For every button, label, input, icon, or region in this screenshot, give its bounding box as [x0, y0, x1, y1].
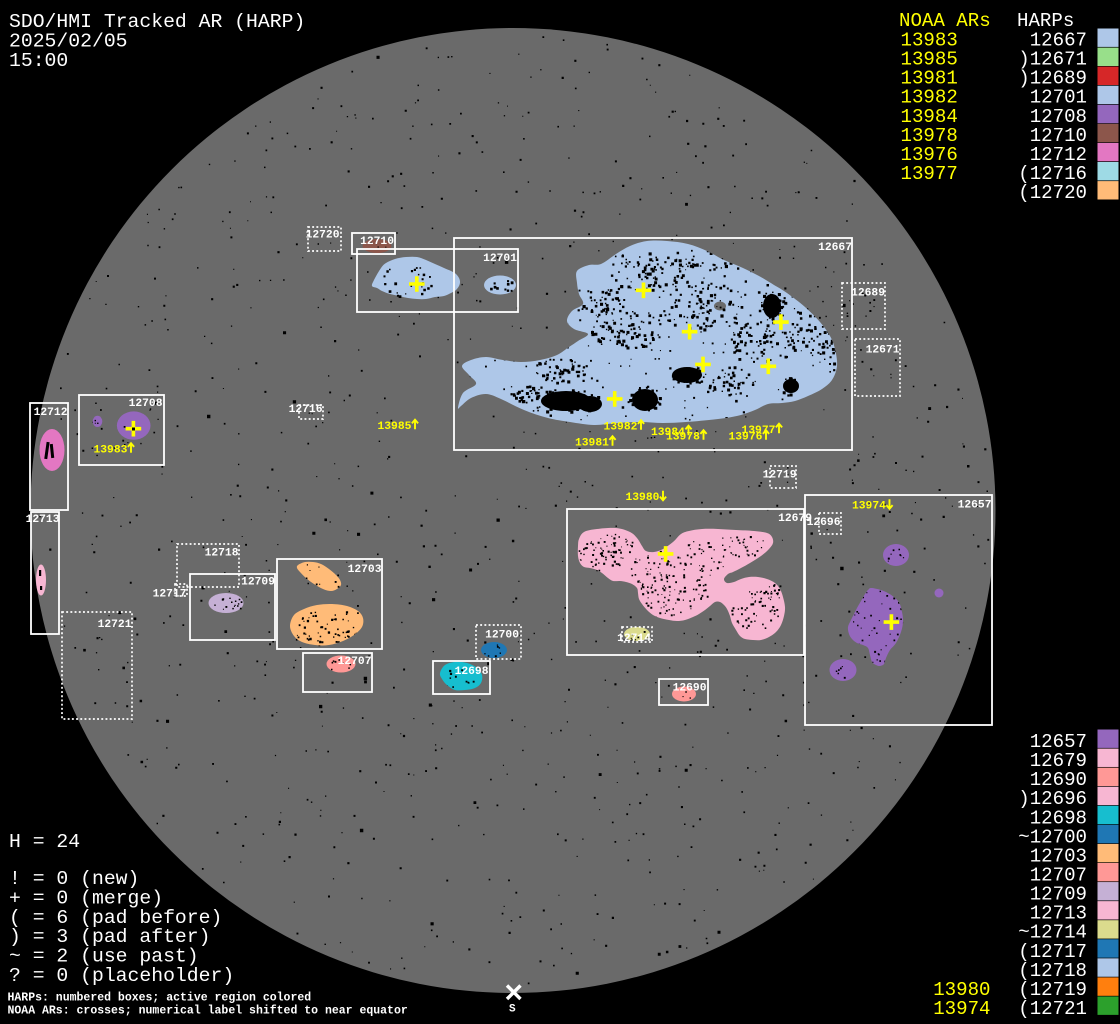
svg-text:13978: 13978 [666, 432, 700, 444]
svg-text:12690: 12690 [673, 683, 707, 695]
svg-text:12689: 12689 [851, 288, 885, 300]
svg-text:13982: 13982 [604, 422, 638, 434]
svg-text:12708: 12708 [129, 398, 163, 410]
svg-text:12710: 12710 [360, 236, 394, 248]
svg-text:12707: 12707 [338, 656, 372, 668]
svg-text:13974: 13974 [852, 501, 886, 513]
svg-text:12696: 12696 [807, 517, 841, 529]
svg-text:12713: 12713 [26, 514, 60, 526]
svg-text:13985: 13985 [378, 421, 412, 433]
svg-text:NOAA ARs: crosses; numerical l: NOAA ARs: crosses; numerical label shift… [8, 1005, 408, 1018]
svg-text:12700: 12700 [485, 630, 519, 642]
svg-text:12709: 12709 [241, 577, 275, 589]
svg-text:(12721: (12721 [1018, 998, 1087, 1020]
svg-text:HARPs: numbered boxes; active: HARPs: numbered boxes; active region col… [8, 992, 312, 1005]
svg-text:12657: 12657 [958, 500, 992, 512]
svg-text:12712: 12712 [34, 407, 68, 419]
svg-text:12703: 12703 [348, 564, 382, 576]
svg-text:S: S [509, 1004, 516, 1016]
svg-text:13983: 13983 [94, 445, 128, 457]
svg-text:12718: 12718 [205, 548, 239, 560]
svg-text:13974: 13974 [933, 998, 990, 1020]
svg-text:12720: 12720 [306, 230, 340, 242]
svg-text:12671: 12671 [866, 345, 900, 357]
svg-text:13977: 13977 [901, 163, 958, 185]
svg-text:? = 0 (placeholder): ? = 0 (placeholder) [9, 965, 234, 987]
svg-text:12667: 12667 [818, 242, 852, 254]
svg-text:13976: 13976 [729, 432, 763, 444]
svg-text:12698: 12698 [455, 666, 489, 678]
svg-text:12716: 12716 [289, 404, 323, 416]
svg-text:(12720: (12720 [1018, 182, 1087, 204]
svg-text:12719: 12719 [763, 470, 797, 482]
svg-text:12717: 12717 [153, 589, 187, 601]
svg-text:13981: 13981 [575, 438, 609, 450]
svg-text:12721: 12721 [98, 619, 132, 631]
svg-text:12701: 12701 [483, 253, 517, 265]
svg-text:13980: 13980 [626, 492, 660, 504]
svg-text:12714: 12714 [617, 633, 651, 645]
svg-text:H = 24: H = 24 [9, 831, 80, 853]
svg-text:15:00: 15:00 [9, 50, 68, 72]
